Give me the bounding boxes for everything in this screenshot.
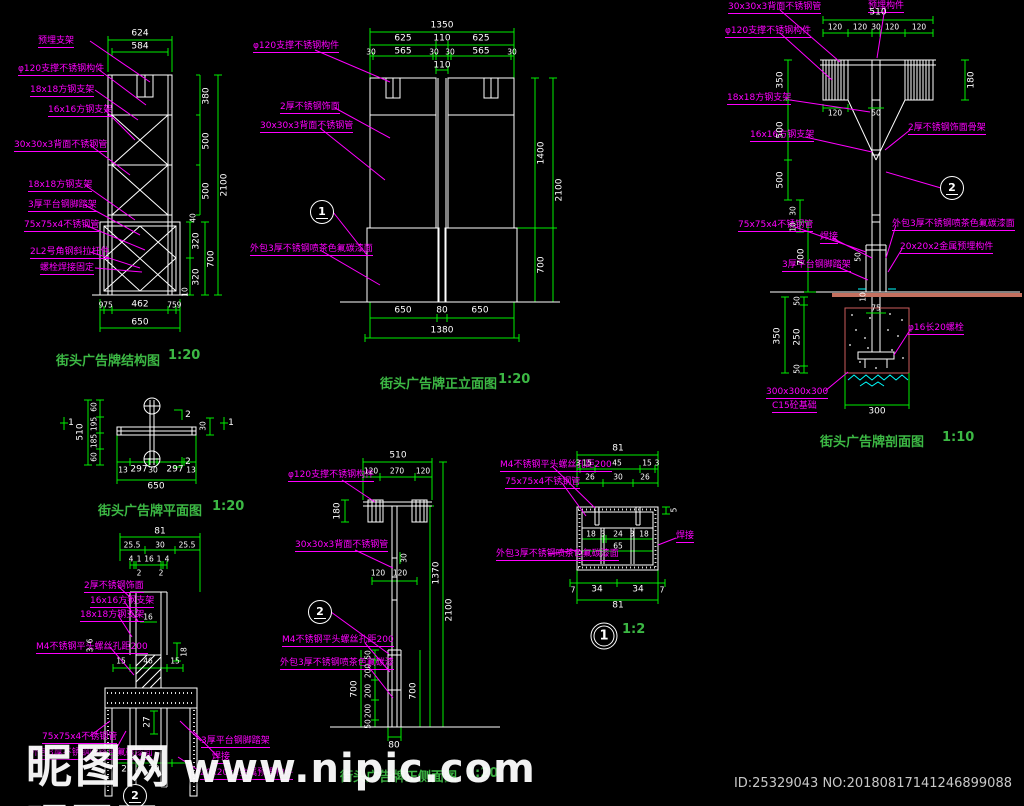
- dim-text: 3: [601, 530, 606, 538]
- dim-text: 110: [433, 35, 450, 44]
- view-plan: 2 2 1 1 510 60 195 185 60 30 13 297 30 2…: [40, 390, 280, 525]
- callout-label: φ120支撑不锈钢构件: [253, 42, 339, 53]
- dim-text: 50: [854, 252, 862, 262]
- callout-label: 16x16方钢支架: [48, 106, 112, 117]
- dim-text: 297: [130, 466, 147, 475]
- dim-text: 6: [86, 639, 94, 644]
- dim-text: 65: [613, 542, 623, 550]
- dim-text: 30: [445, 48, 455, 56]
- watermark-site-url: www.nipic.com: [183, 746, 536, 792]
- dim-text: 1400: [538, 142, 547, 165]
- dim-text: 15: [642, 459, 652, 467]
- dim-text: 15: [170, 657, 180, 665]
- dim-text: 510: [77, 423, 86, 440]
- dim-text: 50: [793, 364, 801, 374]
- callout-label: 18x18方钢支架: [30, 86, 94, 97]
- dim-text: 350: [774, 327, 783, 344]
- image-id-text: ID:25329043 NO:20180817141246899088: [600, 776, 1012, 791]
- dim-text: 10: [859, 292, 867, 302]
- dim-text: 462: [131, 301, 148, 310]
- watermark-site-name: 昵图网: [26, 730, 173, 796]
- dim-text: 650: [471, 307, 488, 316]
- callout-label: 2厚不锈钢饰面: [84, 582, 144, 593]
- callout-label: 焊接: [676, 532, 694, 543]
- dim-text: 120: [371, 569, 385, 577]
- dim-text: 320: [193, 268, 202, 285]
- dim-text: 200: [364, 684, 372, 698]
- dim-text: 500: [777, 171, 786, 188]
- callout-label: 18x18方钢支架: [80, 611, 144, 622]
- view-scale: 1:20: [168, 348, 200, 363]
- dim-text: 185: [90, 434, 98, 448]
- callout-label: φ120支撑不锈钢构件: [18, 65, 104, 76]
- dim-text: 3: [576, 459, 581, 467]
- dim-text: 26: [585, 473, 595, 481]
- callout-label: 300x300x300: [766, 388, 828, 399]
- view-scale: 1:20: [212, 499, 244, 514]
- view-section: 30x30x3背面不锈钢管 预埋构件 φ120支撑不锈钢构件 18x18方钢支架…: [720, 0, 1024, 450]
- callout-label: 预埋支架: [38, 37, 74, 48]
- dim-text: 10: [181, 287, 189, 297]
- dim-text: 81: [612, 445, 623, 454]
- callout-label: 2L2号角钢斜拉杆件: [30, 248, 109, 259]
- dim-text: 10: [789, 222, 797, 232]
- dim-text: 16: [144, 555, 154, 563]
- dim-text: 15: [582, 459, 592, 467]
- dim-text: 9: [177, 301, 182, 309]
- dim-text: 81: [612, 602, 623, 611]
- dim-text: 625: [472, 35, 489, 44]
- dim-text: 200: [364, 704, 372, 718]
- callout-label: C15砼基础: [772, 402, 817, 413]
- dim-text: 75: [871, 304, 881, 312]
- dim-text: 110: [433, 62, 450, 71]
- dim-text: 30: [507, 48, 517, 56]
- callout-label: φ120支撑不锈钢构件: [288, 471, 374, 482]
- section-flag: 1: [228, 418, 234, 428]
- callout-label: 3厚平台钢脚踏架: [28, 201, 97, 212]
- dim-text: 7: [660, 586, 665, 594]
- dim-text: 200: [364, 664, 372, 678]
- dim-text: 50: [871, 109, 881, 117]
- dim-text: 584: [131, 43, 148, 52]
- dim-text: 2: [137, 569, 142, 577]
- dim-text: 1370: [433, 562, 442, 585]
- dim-text: 30: [400, 553, 408, 563]
- callout-label: φ16长20螺栓: [908, 324, 964, 335]
- callout-label: 30x30x3背面不锈钢管: [295, 541, 388, 552]
- detail-marker-1: 1: [310, 200, 334, 224]
- dim-text: 3: [655, 459, 660, 467]
- dim-text: 650: [131, 319, 148, 328]
- dim-text: 45: [612, 459, 622, 467]
- dim-text: 34: [591, 586, 602, 595]
- callout-label: 30x30x3背面不锈钢管: [728, 3, 821, 14]
- dim-text: 4: [165, 555, 170, 563]
- dim-text: 300: [868, 408, 885, 417]
- callout-label: 外包3厚不锈钢喷茶色氟碳漆: [280, 659, 394, 670]
- dim-text: 50: [364, 650, 372, 660]
- callout-label: 外包3厚不锈钢喷茶色氟碳漆面: [250, 245, 373, 256]
- callout-label: 30x30x3背面不锈钢管: [260, 122, 353, 133]
- callout-label: 75x75x4不锈钢管: [24, 221, 99, 232]
- view-detail-1: M4不锈钢平头螺丝孔距200 75x75x4不锈钢管 外包3厚不锈钢喷茶色氟碳漆…: [490, 440, 730, 670]
- dim-text: 350: [777, 71, 786, 88]
- dim-text: 3: [86, 648, 94, 653]
- dim-text: 50: [793, 296, 801, 306]
- view-front-elevation: φ120支撑不锈钢构件 2厚不锈钢饰面 30x30x3背面不锈钢管 外包3厚不锈…: [240, 20, 570, 395]
- callout-label: 2厚不锈钢饰面骨架: [908, 124, 986, 135]
- front-elevation-linework: [240, 20, 570, 395]
- dim-text: 120: [393, 569, 407, 577]
- dim-text: 1380: [431, 327, 454, 336]
- dim-text: 700: [538, 256, 547, 273]
- dim-text: 625: [394, 35, 411, 44]
- dim-text: 500: [777, 121, 786, 138]
- detail-marker-2: 2: [940, 176, 964, 200]
- dim-text: 320: [193, 232, 202, 249]
- dim-text: 1: [137, 555, 142, 563]
- dim-text: 510: [869, 9, 886, 18]
- dim-text: 1350: [431, 22, 454, 31]
- dim-text: 120: [416, 467, 430, 475]
- view-scale: 1:10: [942, 430, 974, 445]
- dim-text: 510: [389, 452, 406, 461]
- watermark-partial: 昵图网: [26, 791, 161, 806]
- callout-label: 2厚不锈钢饰面: [280, 103, 340, 114]
- dim-text: 30: [148, 466, 158, 474]
- dim-text: 30: [789, 206, 797, 216]
- dim-text: 15: [116, 657, 126, 665]
- dim-text: 120: [828, 109, 842, 117]
- dim-text: 18: [586, 530, 596, 538]
- dim-text: 120: [364, 467, 378, 475]
- dim-text: 7: [571, 586, 576, 594]
- dim-text: 120: [912, 23, 926, 31]
- section-flag: 2: [185, 410, 191, 420]
- view-title: 街头广告牌结构图: [56, 350, 160, 369]
- dim-text: 270: [390, 467, 404, 475]
- dim-text: 80: [436, 307, 447, 316]
- view-title: 街头广告牌正立面图: [380, 373, 497, 392]
- dim-text: 27: [144, 716, 153, 727]
- dim-text: 4: [129, 555, 134, 563]
- detail-marker-1: 1: [599, 629, 608, 644]
- dim-text: 24: [613, 530, 623, 538]
- dim-text: 75: [167, 301, 177, 309]
- dim-text: 46: [143, 657, 153, 665]
- dim-text: 30: [429, 48, 439, 56]
- dim-text: 2: [159, 569, 164, 577]
- dim-text: 13: [186, 466, 196, 474]
- detail-marker-2: 2: [308, 600, 332, 624]
- callout-label: 焊接: [820, 233, 838, 244]
- dim-text: 30: [871, 23, 881, 31]
- view-structure: 预埋支架 φ120支撑不锈钢构件 18x18方钢支架 16x16方钢支架 30x…: [0, 20, 260, 370]
- watermark: 昵图网 www.nipic.com: [26, 730, 536, 796]
- dim-text: 650: [394, 307, 411, 316]
- dim-text: 18: [639, 530, 649, 538]
- callout-label: 外包3厚不锈钢喷茶色氟碳漆面: [892, 220, 1015, 231]
- dim-text: 30: [366, 48, 376, 56]
- callout-label: 18x18方钢支架: [28, 181, 92, 192]
- detail-scale: 1:2: [622, 622, 645, 637]
- callout-label: 20x20x2金属预埋构件: [900, 243, 993, 254]
- dim-text: 30: [199, 421, 207, 431]
- dim-text: 13: [118, 466, 128, 474]
- dim-text: 120: [885, 23, 899, 31]
- callout-label: 30x30x3背面不锈钢管: [14, 141, 107, 152]
- dim-text: 75: [103, 301, 113, 309]
- dim-text: 700: [798, 248, 807, 265]
- view-scale: 1:20: [498, 372, 530, 387]
- cad-canvas: 预埋支架 φ120支撑不锈钢构件 18x18方钢支架 16x16方钢支架 30x…: [0, 0, 1024, 806]
- foundation-outline: [845, 308, 909, 373]
- dim-text: 2100: [556, 179, 565, 202]
- callout-label: 75x75x4不锈钢管: [505, 478, 580, 489]
- dim-text: 81: [154, 528, 165, 537]
- callout-label: φ120支撑不锈钢构件: [725, 27, 811, 38]
- dim-text: 2100: [221, 174, 230, 197]
- dim-text: 180: [334, 502, 343, 519]
- view-title: 街头广告牌平面图: [98, 500, 202, 519]
- dim-text: 700: [208, 250, 217, 267]
- callout-label: 外包3厚不锈钢喷茶色氟碳漆面: [496, 550, 619, 561]
- dim-text: 650: [147, 483, 164, 492]
- dim-text: 624: [131, 30, 148, 39]
- section-flag: 1: [68, 418, 74, 428]
- dim-text: 500: [203, 182, 212, 199]
- dim-text: 30: [613, 473, 623, 481]
- dim-text: 700: [410, 682, 419, 699]
- dim-text: 40: [189, 213, 197, 223]
- dim-text: 250: [794, 328, 803, 345]
- dim-text: 565: [472, 48, 489, 57]
- dim-text: 195: [90, 417, 98, 431]
- dim-text: 180: [968, 71, 977, 88]
- dim-text: 500: [203, 132, 212, 149]
- view-title: 街头广告牌剖面图: [820, 431, 924, 450]
- dim-text: 5: [670, 508, 678, 513]
- dim-text: 50: [364, 719, 372, 729]
- dim-text: 1: [157, 555, 162, 563]
- callout-label: 18x18方钢支架: [727, 94, 791, 105]
- dim-text: 120: [853, 23, 867, 31]
- dim-text: 700: [351, 680, 360, 697]
- dim-text: 25.5: [179, 541, 196, 549]
- callout-label: M4不锈钢平头螺丝孔距200: [500, 461, 612, 472]
- dim-text: 297: [166, 466, 183, 475]
- dim-text: 60: [90, 402, 98, 412]
- callout-label: 3厚平台钢脚踏架: [782, 261, 851, 272]
- dim-text: 380: [203, 87, 212, 104]
- callout-label: M4不锈钢平头螺丝孔距200: [282, 636, 394, 647]
- dim-text: 18: [180, 647, 188, 657]
- dim-text: 34: [632, 586, 643, 595]
- dim-text: 16: [143, 613, 153, 621]
- dim-text: 30: [155, 541, 165, 549]
- dim-text: 3: [630, 530, 635, 538]
- dim-text: 60: [90, 452, 98, 462]
- callout-label: 16x16方钢支架: [90, 597, 154, 608]
- callout-label: 螺栓焊接固定: [40, 264, 94, 275]
- foundation-speckle: [849, 313, 904, 369]
- dim-text: 25.5: [124, 541, 141, 549]
- dim-text: 565: [394, 48, 411, 57]
- dim-text: 120: [828, 23, 842, 31]
- callout-label: 75x75x4不锈钢管: [738, 221, 813, 232]
- dim-text: 26: [640, 473, 650, 481]
- dim-text: 2100: [446, 599, 455, 622]
